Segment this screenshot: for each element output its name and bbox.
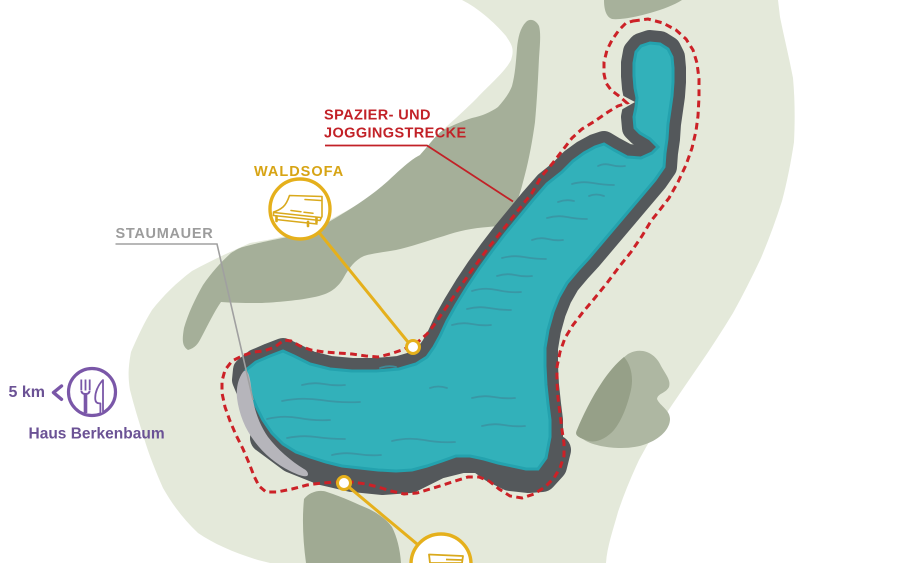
svg-text:WALDSOFA: WALDSOFA [254, 164, 344, 180]
svg-text:Haus Berkenbaum: Haus Berkenbaum [29, 426, 165, 443]
svg-text:SPAZIER- UND: SPAZIER- UND [324, 108, 431, 124]
svg-text:STAUMAUER: STAUMAUER [116, 226, 214, 242]
svg-text:5 km: 5 km [9, 384, 45, 401]
svg-text:JOGGINGSTRECKE: JOGGINGSTRECKE [324, 126, 467, 142]
